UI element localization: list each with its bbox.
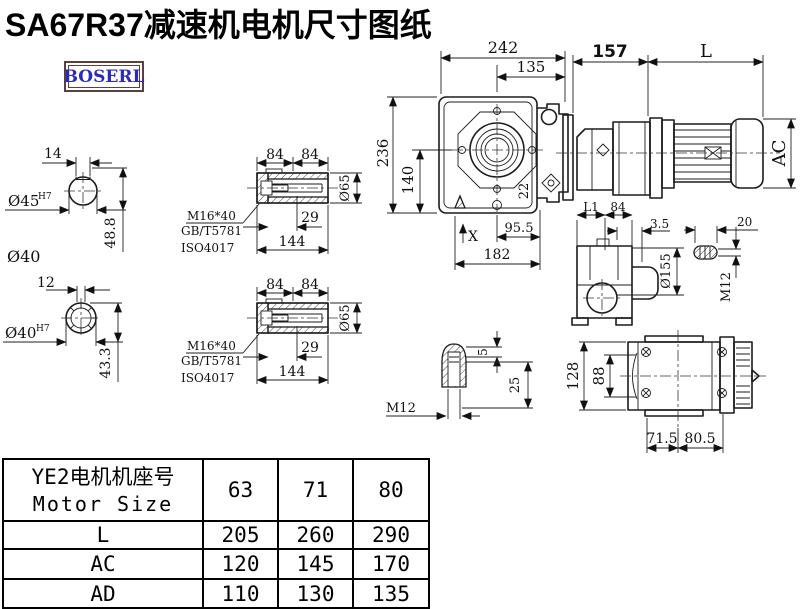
table-cell: 145 xyxy=(278,549,353,579)
gearbox-front-view: 242 135 236 140 22 95.5 182 X xyxy=(374,38,568,270)
hollow-shaft-lower: 84 84 29 144 Ø65 M16*40 GB/T5781 ISO4017 xyxy=(181,277,362,385)
table-cell: 205 xyxy=(203,521,278,549)
table-cell: 170 xyxy=(353,549,429,579)
dim-22-label: 22 xyxy=(517,183,532,200)
bolt-standard1-label: GB/T5781 xyxy=(181,224,242,238)
dim-182-label: 182 xyxy=(484,247,511,263)
table-header-71: 71 xyxy=(278,459,353,521)
dim-outer-40-label: Ø40 xyxy=(7,247,40,266)
dim-L-label: L xyxy=(700,41,712,62)
table-header-motor-size: YE2电机机座号 Motor Size xyxy=(3,459,203,521)
dim-L1-label: L1 xyxy=(583,200,599,214)
dim-bore-45-tolerance: H7 xyxy=(38,192,52,202)
table-cell: 120 xyxy=(203,549,278,579)
dim-84b-label: 84 xyxy=(301,147,319,163)
dim-236-label: 236 xyxy=(374,139,392,168)
dim-M12-end-label: M12 xyxy=(386,401,416,416)
bolt-standard2-label: ISO4017 xyxy=(181,241,234,255)
dim-135-label: 135 xyxy=(517,58,546,76)
table-header-80: 80 xyxy=(353,459,429,521)
dim-48-8-label: 48.8 xyxy=(103,217,119,248)
shaft-section-hollow: 12 Ø40 H7 43.3 xyxy=(3,275,123,382)
dim-AC-label: AC xyxy=(769,140,790,168)
dim-5-label: 5 xyxy=(476,348,490,356)
dim-242-label: 242 xyxy=(488,38,519,57)
table-row-label: AC xyxy=(3,549,203,579)
dim-bore-40-label: Ø40 xyxy=(5,324,36,342)
dim-43-3-label: 43.3 xyxy=(98,347,114,378)
table-cell: 290 xyxy=(353,521,429,549)
table-row-AD: AD 110 130 135 xyxy=(3,579,429,608)
table-row-label: AD xyxy=(3,579,203,608)
dim-14-label: 14 xyxy=(44,146,62,162)
shaft-end-detail: M12 5 25 xyxy=(386,331,533,419)
table-header-63: 63 xyxy=(203,459,278,521)
dim-84b-label-2: 84 xyxy=(301,277,319,293)
dim-155-label: Ø155 xyxy=(659,253,674,288)
bolt-standard1-label-2: GB/T5781 xyxy=(181,354,242,368)
dim-95-5-label: 95.5 xyxy=(505,221,534,236)
bolt-standard2-label-2: ISO4017 xyxy=(181,371,234,385)
bolt-spec-label: M16*40 xyxy=(187,209,236,223)
dim-20-label: 20 xyxy=(737,215,752,229)
dim-84-side-label: 84 xyxy=(610,200,626,214)
motor-size-table: YE2电机机座号 Motor Size 63 71 80 L 205 260 2… xyxy=(2,458,430,609)
table-header-en: Motor Size xyxy=(4,492,202,516)
dim-bore-40-tolerance: H7 xyxy=(36,324,50,334)
technical-drawing: 14 Ø45 H7 48.8 Ø40 12 Ø40 H7 43.3 xyxy=(0,0,800,456)
dim-M12-plug-label: M12 xyxy=(719,272,734,302)
dim-84a-label: 84 xyxy=(266,147,284,163)
hollow-shaft-upper: 84 84 29 144 Ø65 M16*40 GB/T5781 ISO4017 xyxy=(181,147,362,255)
dim-84a-label-2: 84 xyxy=(266,277,284,293)
motor-assembly-view: 157 L AC xyxy=(556,41,796,200)
table-cell: 130 xyxy=(278,579,353,608)
dim-128-label: 128 xyxy=(564,362,582,391)
table-row-L: L 205 260 290 xyxy=(3,521,429,549)
shaft-section-solid: 14 Ø45 H7 48.8 Ø40 xyxy=(5,146,127,266)
dim-29-label-2: 29 xyxy=(301,340,319,356)
dim-71-5-label: 71.5 xyxy=(646,431,677,447)
table-cell: 135 xyxy=(353,579,429,608)
table-cell: 260 xyxy=(278,521,353,549)
gearbox-bottom-view: 128 88 71.5 80.5 xyxy=(564,330,766,453)
dim-29-label: 29 xyxy=(301,210,319,226)
dim-65-label-2: Ø65 xyxy=(338,304,353,331)
dim-12-label: 12 xyxy=(37,275,55,291)
plug-detail: 20 M12 xyxy=(684,215,758,302)
dim-bore-45-label: Ø45 xyxy=(8,192,39,210)
table-cell: 110 xyxy=(203,579,278,608)
table-header-cn: YE2电机机座号 xyxy=(4,464,202,491)
gearbox-side-view: L1 84 3.5 Ø155 xyxy=(572,200,684,325)
dim-80-5-label: 80.5 xyxy=(684,431,715,447)
dim-157-label: 157 xyxy=(592,42,628,62)
dim-3-5-label: 3.5 xyxy=(650,217,669,231)
dim-144-label: 144 xyxy=(279,234,306,250)
table-row-AC: AC 120 145 170 xyxy=(3,549,429,579)
dim-140-label: 140 xyxy=(399,166,417,195)
dim-88-label: 88 xyxy=(590,366,608,385)
dim-65-label: Ø65 xyxy=(338,174,353,201)
mark-x-label: X xyxy=(468,229,478,245)
bolt-spec-label-2: M16*40 xyxy=(187,339,236,353)
table-header-row: YE2电机机座号 Motor Size 63 71 80 xyxy=(3,459,429,521)
dim-25-label: 25 xyxy=(508,377,523,394)
dim-144-label-2: 144 xyxy=(279,364,306,380)
table-row-label: L xyxy=(3,521,203,549)
